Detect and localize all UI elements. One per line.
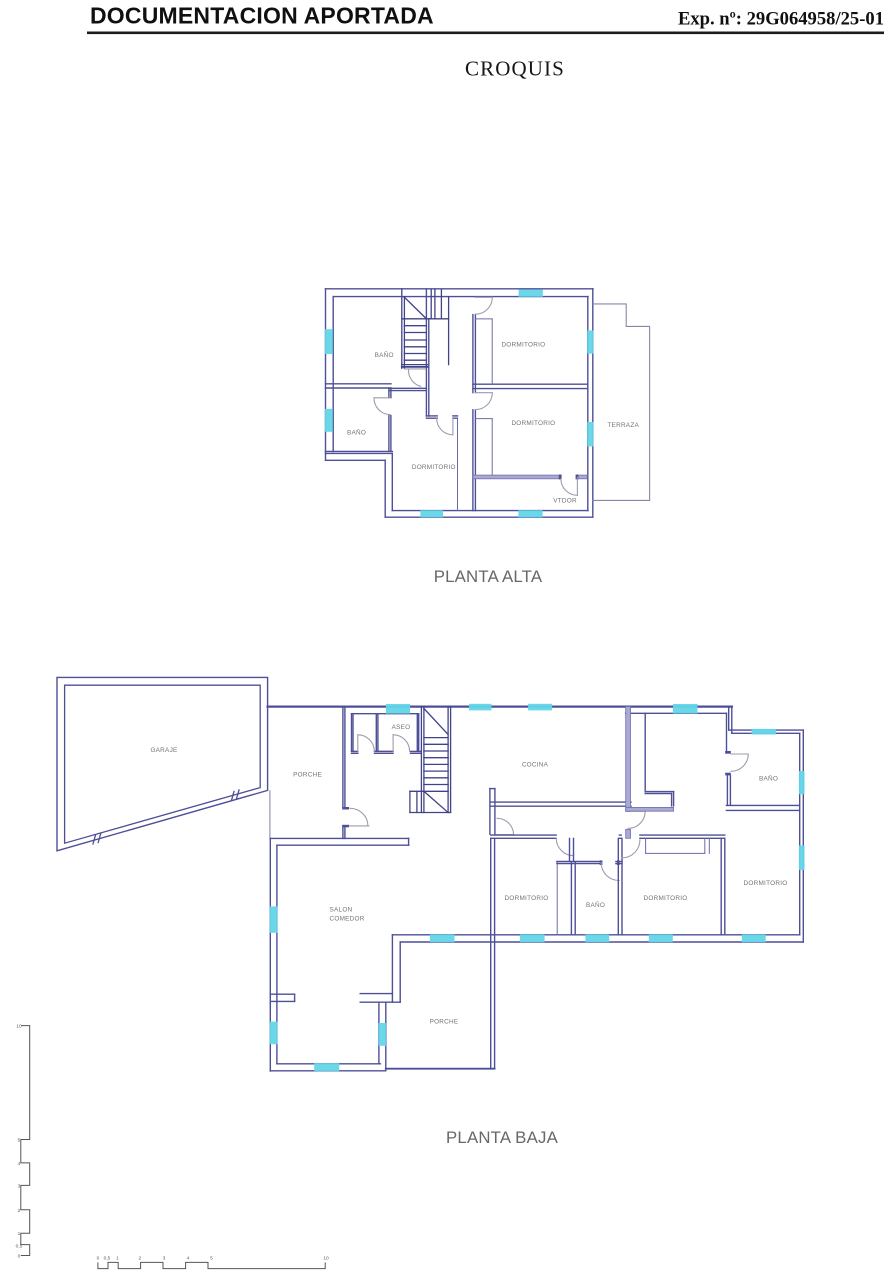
svg-text:DORMITORIO: DORMITORIO <box>501 342 545 349</box>
svg-text:DORMITORIO: DORMITORIO <box>505 895 549 902</box>
svg-text:DORMITORIO: DORMITORIO <box>644 895 688 902</box>
svg-text:BAÑO: BAÑO <box>586 900 605 909</box>
svg-text:5: 5 <box>210 1256 213 1262</box>
svg-text:4: 4 <box>187 1256 190 1262</box>
svg-text:PORCHE: PORCHE <box>293 772 322 779</box>
svg-text:GARAJE: GARAJE <box>150 747 177 754</box>
svg-text:0: 0 <box>18 1254 21 1260</box>
svg-text:0: 0 <box>97 1256 100 1262</box>
svg-text:5: 5 <box>18 1138 21 1144</box>
svg-text:PLANTA ALTA: PLANTA ALTA <box>434 567 543 586</box>
svg-text:CROQUIS: CROQUIS <box>465 57 565 81</box>
svg-text:2: 2 <box>139 1256 142 1262</box>
svg-text:DORMITORIO: DORMITORIO <box>412 464 456 471</box>
svg-text:COCINA: COCINA <box>522 762 549 769</box>
svg-text:DOCUMENTACION APORTADA: DOCUMENTACION APORTADA <box>90 3 434 29</box>
svg-text:SALON: SALON <box>330 907 353 914</box>
svg-text:10: 10 <box>323 1256 329 1262</box>
svg-text:2: 2 <box>18 1208 21 1214</box>
svg-text:ASEO: ASEO <box>392 724 411 731</box>
svg-text:4: 4 <box>18 1161 21 1167</box>
svg-text:VTDOR: VTDOR <box>553 498 577 505</box>
svg-text:DORMITORIO: DORMITORIO <box>744 880 788 887</box>
svg-text:BAÑO: BAÑO <box>759 774 778 783</box>
svg-text:PORCHE: PORCHE <box>430 1019 459 1026</box>
svg-text:1: 1 <box>116 1256 119 1262</box>
svg-text:0,5: 0,5 <box>16 1244 23 1250</box>
svg-text:1: 1 <box>18 1231 21 1237</box>
svg-text:BAÑO: BAÑO <box>347 428 366 437</box>
svg-text:BAÑO: BAÑO <box>375 350 394 359</box>
svg-text:COMEDOR: COMEDOR <box>330 916 365 923</box>
svg-text:Exp. nº: 29G064958/25-01: Exp. nº: 29G064958/25-01 <box>678 9 884 30</box>
svg-text:TERRAZA: TERRAZA <box>607 422 639 429</box>
svg-text:3: 3 <box>18 1183 21 1189</box>
svg-text:10: 10 <box>16 1024 22 1030</box>
svg-text:PLANTA BAJA: PLANTA BAJA <box>446 1128 559 1147</box>
svg-text:DORMITORIO: DORMITORIO <box>511 420 555 427</box>
svg-text:3: 3 <box>163 1256 166 1262</box>
svg-text:0,5: 0,5 <box>104 1256 111 1262</box>
